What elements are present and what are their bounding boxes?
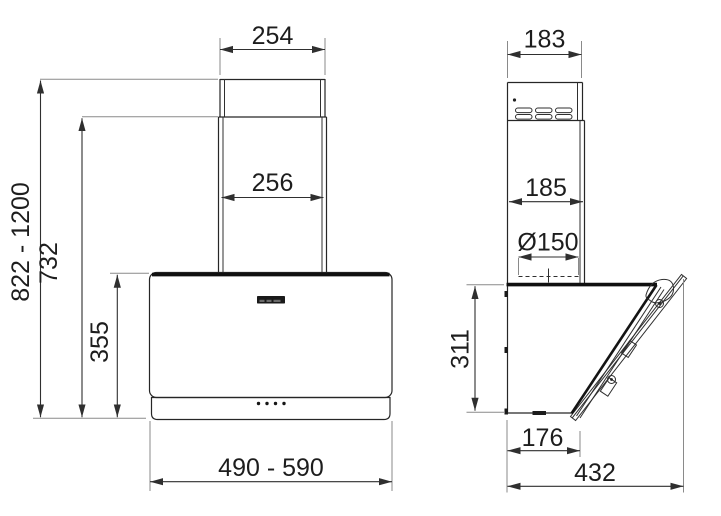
hinge-bracket [600, 378, 616, 396]
dim-chimney-top-width-label: 254 [252, 22, 294, 50]
dim-chimney-height-label: 732 [35, 242, 63, 284]
dim-body-height-front-label: 355 [86, 321, 114, 363]
front-hood-body [150, 273, 393, 420]
dim-width-range-label: 490 - 590 [218, 454, 324, 482]
dim-duct-diameter-label: Ø150 [517, 229, 578, 257]
vent-slots [516, 108, 573, 119]
dim-height-range-label: 822 - 1200 [7, 182, 35, 302]
control-buttons [257, 402, 286, 405]
dim-chimney-top-width: 254 [220, 22, 325, 75]
duct-collar [519, 258, 579, 283]
dim-chimney-depth: 185 [509, 174, 583, 202]
side-view: 183 185 Ø150 311 176 [447, 26, 687, 493]
front-view: 254 256 822 - 1200 732 355 [7, 22, 392, 491]
dim-body-depth-label: 176 [522, 424, 564, 452]
dim-chimney-width-label: 256 [252, 169, 294, 197]
dim-body-height-side-label: 311 [447, 329, 475, 369]
dim-chimney-top-depth-label: 183 [524, 26, 566, 54]
open-glass-panel [571, 275, 687, 421]
dim-duct-diameter: Ø150 [517, 229, 578, 258]
elevation-drawing-svg: 254 256 822 - 1200 732 355 [0, 0, 721, 516]
dim-body-height-front: 355 [86, 273, 149, 417]
lamp [533, 411, 547, 415]
dim-chimney-depth-label: 185 [525, 174, 567, 202]
brand-logo-badge [257, 296, 285, 304]
dim-body-depth: 176 [508, 424, 581, 457]
installation-drawing: 254 256 822 - 1200 732 355 [0, 0, 721, 516]
dim-total-depth-label: 432 [574, 459, 616, 487]
wall-bracket [505, 291, 509, 297]
dim-body-height-side: 311 [447, 285, 505, 413]
wall-bracket [505, 409, 509, 415]
screw-dot [513, 98, 516, 101]
dim-chimney-width: 256 [222, 169, 324, 198]
dim-chimney-height: 732 [35, 117, 218, 418]
wall-bracket [505, 347, 509, 353]
dim-total-depth: 432 [507, 279, 684, 493]
dim-chimney-top-depth: 183 [508, 26, 582, 79]
dim-width-range: 490 - 590 [150, 421, 392, 491]
side-hood-body [505, 275, 687, 421]
